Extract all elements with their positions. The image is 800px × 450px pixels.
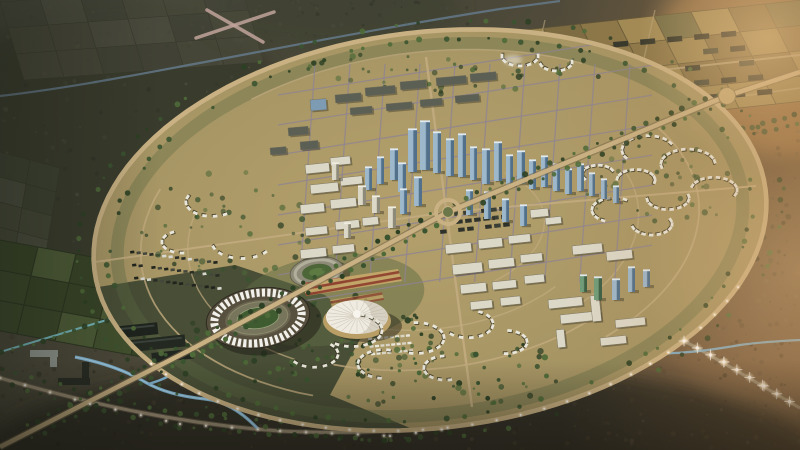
tree [311,60,317,66]
tree [542,354,548,360]
block [376,352,380,355]
terrain-speckle [331,24,335,28]
terrain-speckle [465,6,468,9]
tree [536,166,541,171]
tree [348,78,353,83]
tower-face [414,178,418,206]
tree [440,351,445,356]
block [198,284,202,287]
tower-side [506,200,509,222]
tree [536,41,540,45]
tree [416,21,420,25]
tree [241,215,246,220]
house [241,257,246,260]
tree [328,279,333,284]
block [164,267,168,270]
tree [522,171,528,177]
tower-face [398,164,402,192]
tree [396,230,401,235]
tree [500,181,503,184]
terrain-speckle [315,7,318,10]
tree [401,346,405,350]
tree [502,38,507,43]
tree [305,238,311,244]
tree [252,81,258,87]
block [386,344,390,347]
terrain-speckle [297,15,299,17]
tree [211,106,214,109]
terrain-speckle [339,23,343,27]
block [170,268,174,271]
tree [216,326,219,329]
block [494,223,501,228]
terrain-speckle [230,75,234,79]
tree [429,212,432,215]
tree [473,352,479,358]
house [414,321,419,324]
tree [467,206,471,210]
tree [518,40,523,45]
tree [278,222,284,228]
tree [331,355,335,359]
terrain-speckle [466,22,469,25]
terrain-speckle [315,12,319,16]
tree [480,200,486,206]
block [407,342,411,345]
tower-roof [332,162,339,164]
terrain-speckle [372,0,374,2]
field-cell [168,13,216,42]
tower-side [451,140,454,176]
tower-roof [541,155,548,157]
tree [279,205,285,211]
terrain-speckle [160,76,165,81]
tree [348,267,353,272]
tower-roof [398,162,406,164]
tree [361,263,366,268]
tree [415,69,418,72]
tree [223,337,228,342]
tree [242,270,248,276]
house [440,354,445,357]
house [213,215,218,218]
house [161,240,164,245]
tree [459,65,463,69]
tree [336,76,342,82]
terrain-speckle [301,11,304,14]
tree [552,172,557,177]
block [172,281,176,284]
tree [469,19,473,23]
tree [428,341,433,346]
tree [299,216,305,222]
midrise-building [270,147,287,155]
tree [396,355,402,361]
tree [163,224,167,228]
tree [517,187,521,191]
tower-roof [494,141,502,143]
terrain-speckle [295,33,297,35]
tower-face [332,164,336,180]
terrain-speckle [215,83,218,86]
tree [222,205,225,208]
house [184,200,187,205]
tree [288,304,291,307]
tree [407,223,411,227]
tower-roof [372,195,380,197]
tower-roof [529,159,536,161]
terrain-speckle [233,70,235,72]
block [217,287,221,290]
tower-side [381,158,384,184]
tree [362,68,365,71]
tree [528,179,533,184]
tree [206,171,212,177]
tower-roof [365,166,372,168]
house [537,54,540,59]
tree [475,190,479,194]
terrain-speckle [270,39,273,42]
midrise-building [310,99,327,111]
house [419,351,424,354]
block [406,334,410,337]
tree [307,344,310,347]
tree [245,276,251,282]
tower-face [458,135,462,177]
aerial-city-render [0,0,800,450]
tree [194,336,199,341]
tree [263,267,269,273]
block [181,257,185,260]
house [504,352,509,355]
tree [241,64,247,70]
tree [428,333,433,338]
tree [190,321,195,326]
tree [248,309,253,314]
tree [473,84,477,88]
tree [311,349,314,352]
terrain-speckle [206,91,208,93]
tree [292,232,296,236]
tower-side [463,135,466,177]
tree [406,69,409,72]
tower-roof [482,148,490,150]
tree [301,345,306,350]
tower-face [372,197,376,213]
terrain-speckle [414,1,417,4]
tree [272,265,278,271]
tree [239,225,242,228]
tree [349,58,352,61]
tower-roof [458,133,466,135]
tree [516,68,521,73]
block [490,207,497,212]
tree [537,348,543,354]
house [552,69,557,72]
tree [394,347,400,353]
tower-roof [390,148,398,150]
tree [197,268,202,273]
block [166,280,170,283]
tree [511,177,515,181]
terrain-speckle [277,8,281,12]
block [402,342,406,345]
tree [464,196,469,201]
tree [254,320,257,323]
tower-side [419,178,422,206]
tower-face [388,208,392,228]
house [354,345,359,348]
tree [306,67,310,71]
tower-side [393,208,396,228]
block [397,343,401,346]
tree [367,70,370,73]
tower-roof [517,150,525,152]
tree [298,297,301,300]
tree [385,234,391,240]
tower-roof [388,206,396,208]
tree [412,234,416,238]
block [160,280,164,283]
terrain-speckle [410,26,413,29]
tree [401,315,406,320]
tree [444,36,450,42]
tree [410,344,414,348]
tree [418,218,423,223]
tree [547,160,553,166]
tree [349,49,353,53]
tree [198,353,204,359]
tree [290,285,295,290]
block [215,274,219,277]
terrain-speckle [310,2,313,5]
tree [269,297,273,301]
tower-side [438,133,441,173]
tree [349,352,354,357]
tower-roof [446,138,454,140]
terrain-speckle [313,4,315,6]
tree [318,285,322,289]
tree [169,187,173,191]
tower-face [390,150,394,180]
tower-roof [408,128,417,130]
block [465,218,472,223]
tower-face [400,190,404,214]
tree [205,330,211,336]
tower-face [420,122,426,170]
tree [404,239,408,243]
tree [382,81,385,84]
tower-side [404,190,407,214]
tree [238,314,242,318]
terrain-speckle [441,20,444,23]
block [185,283,189,286]
tree [407,55,410,58]
tree [233,332,237,336]
block [467,226,474,231]
tree [394,337,399,342]
terrain-speckle [295,1,297,3]
tower-side [377,197,380,213]
tree [322,58,326,62]
tower-roof [520,204,527,206]
tree [470,67,475,72]
terrain-speckle [313,34,317,38]
block [400,335,404,338]
tower-roof [466,189,473,191]
tower-side [499,143,502,181]
tower-face [520,206,524,226]
cloud-puff [504,55,522,65]
tower-side [348,224,351,238]
tree [174,347,178,351]
screenshot-root [0,0,800,450]
block [190,271,194,274]
block [175,256,179,259]
tree [247,231,253,237]
block [179,282,183,285]
tree [381,252,386,257]
tree [203,208,207,212]
tree [172,262,177,267]
terrain-speckle [393,1,396,4]
tree [190,226,193,229]
terrain-speckle [298,7,301,10]
block [168,255,172,258]
tower-side [487,150,490,184]
tree [413,357,416,360]
tree [210,192,214,196]
tower-roof [414,176,422,178]
block [440,229,447,234]
tree [415,316,418,319]
block [177,269,181,272]
tree [483,19,488,24]
tree [195,197,200,202]
block [375,345,379,348]
terrain-speckle [345,13,348,16]
tree [272,194,275,197]
tree [259,303,265,309]
tower-roof [502,198,509,200]
tree [342,256,346,260]
terrain-speckle [258,20,261,23]
midrise-building [288,126,309,136]
terrain-speckle [169,98,171,100]
tree [201,349,206,354]
tree [501,84,506,89]
tree [453,62,456,65]
block [213,261,217,264]
tree [298,241,302,245]
tree [184,97,187,100]
tower-side [414,130,417,172]
tree [243,170,248,175]
tree [340,339,344,343]
tree [405,317,411,323]
tree [312,275,316,279]
terrain-speckle [417,1,420,4]
tree [371,257,375,261]
central-roundabout-island [443,207,454,218]
tower-face [433,133,437,173]
tree [359,28,365,34]
tower-side [426,122,430,170]
terrain-speckle [401,6,403,8]
tree [322,268,325,271]
tree [300,233,304,237]
tower-side [395,150,398,180]
block [380,344,384,347]
tower-face [506,156,510,186]
tree [525,19,531,25]
tree [301,281,305,285]
block [188,258,192,261]
tree [511,73,514,76]
tree [164,353,168,357]
tower-side [403,164,406,192]
tree [190,352,196,358]
tree [353,252,358,257]
terrain-speckle [325,35,328,38]
terrain-speckle [292,1,295,4]
terrain-speckle [362,24,365,27]
terrain-speckle [305,32,307,34]
tower-side [524,206,527,226]
tree [390,68,393,71]
tree [433,89,436,92]
tree [306,291,311,296]
terrain-speckle [446,7,449,10]
tree [432,70,438,76]
tower-roof [377,156,384,158]
tree [243,324,249,330]
tower-face [446,140,450,176]
block [183,270,187,273]
tree [492,195,496,199]
tree [276,308,282,314]
tree [434,223,440,229]
tree [232,265,236,269]
tree [220,196,225,201]
house [507,329,512,332]
tree [488,187,491,190]
tower-face [358,187,362,205]
terrain-speckle [316,4,319,7]
tree [420,332,424,336]
tree [520,73,524,77]
tree [292,254,298,260]
tree [186,343,190,347]
tree [422,228,427,233]
tree [227,320,232,325]
tower-face [494,143,498,181]
tree [439,90,443,94]
block [207,260,211,263]
tree [504,190,508,194]
tree [195,214,200,219]
tower-face [377,158,381,184]
tree [395,24,398,27]
tree [194,327,200,333]
tower-roof [470,146,477,148]
terrain-speckle [255,9,258,12]
tower-face [470,148,474,180]
terrain-speckle [165,92,167,94]
tree [530,48,535,53]
tree [325,355,329,359]
house [344,345,349,348]
